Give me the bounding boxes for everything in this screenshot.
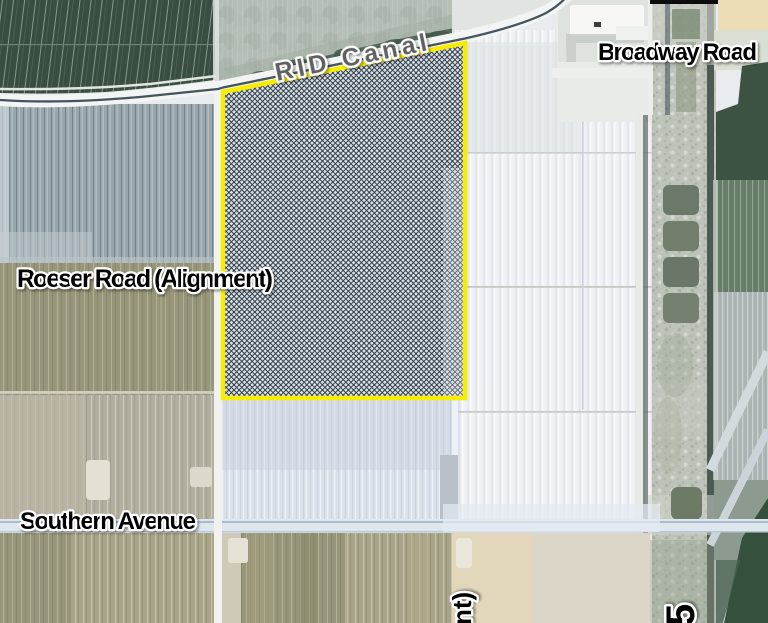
svg-text:5: 5 bbox=[659, 604, 703, 623]
svg-text:Roeser Road (Alignment): Roeser Road (Alignment) bbox=[17, 265, 273, 293]
svg-text:Southern Avenue: Southern Avenue bbox=[20, 508, 196, 535]
svg-text:Broadway Road: Broadway Road bbox=[598, 39, 757, 66]
svg-text:nt): nt) bbox=[447, 592, 477, 623]
